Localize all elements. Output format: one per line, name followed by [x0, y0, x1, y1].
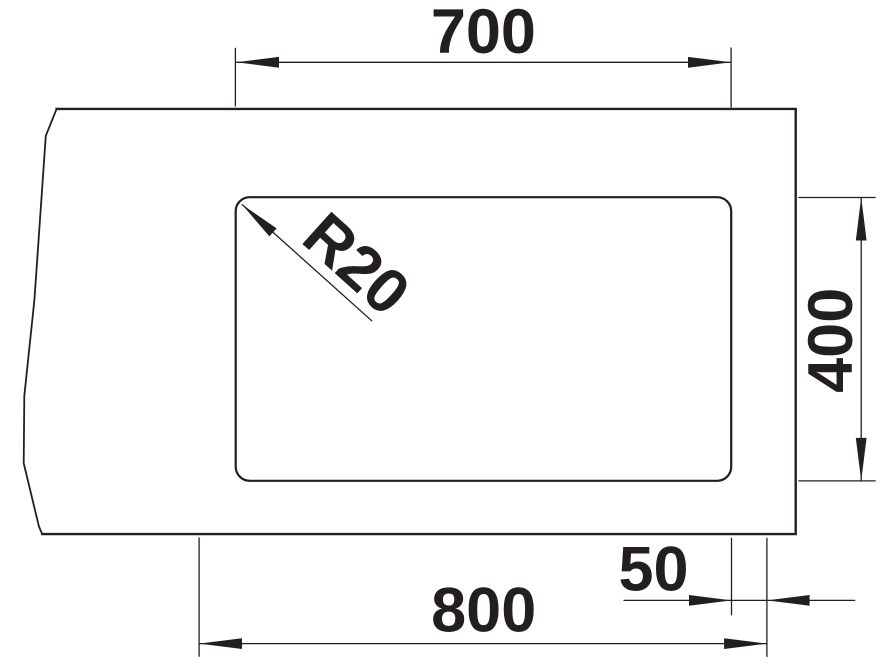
- svg-text:400: 400: [796, 288, 866, 393]
- svg-text:700: 700: [431, 0, 536, 67]
- svg-text:R20: R20: [290, 200, 423, 329]
- svg-text:800: 800: [431, 575, 536, 645]
- svg-text:50: 50: [618, 535, 688, 605]
